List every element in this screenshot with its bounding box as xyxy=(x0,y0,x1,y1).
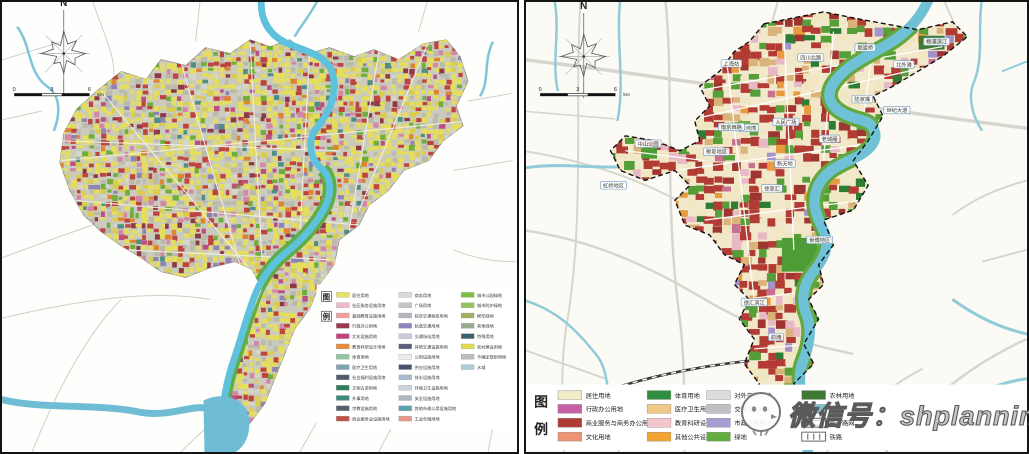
legend-label: 城市公园绿地 xyxy=(477,292,502,298)
place-label: 提篮桥 xyxy=(855,44,876,52)
scale-unit: km xyxy=(97,92,104,98)
screenshot-root: N036km图例居住用地社区服务设施用地基础教育设施用地行政办公用地文化设施用地… xyxy=(0,0,1029,454)
legend-item: 商务用地 xyxy=(399,292,431,298)
legend-swatch xyxy=(461,303,474,308)
place-label-text: 陆家嘴 xyxy=(854,95,870,103)
place-label-text: 上海站 xyxy=(724,60,741,68)
legend-swatch xyxy=(647,391,671,400)
place-label-text: 老城厢 xyxy=(822,135,838,143)
legend-swatch xyxy=(399,375,412,380)
legend-swatch xyxy=(336,396,349,401)
legend-item: 宗教设施用地 xyxy=(336,405,377,411)
legend-swatch xyxy=(707,391,731,400)
legend-label: 农村建设用地 xyxy=(477,343,502,349)
legend-label: 楔形绿地 xyxy=(477,312,494,318)
place-label: 人民广场 xyxy=(773,118,799,126)
legend-item: 其他绿地 xyxy=(461,323,493,329)
legend-item: 其他交通设施用地 xyxy=(399,343,448,349)
legend-label: 其他交通设施用地 xyxy=(415,343,448,349)
right-map-canvas: 上海站四川北路提篮桥杨浦滨江北外滩苏河湾陆家嘴世纪大道南京西路人民广场老城厢衡复… xyxy=(524,0,1029,454)
legend-label: 居住用地 xyxy=(352,292,369,298)
legend-label: 工业仓储用地 xyxy=(415,415,440,421)
legend: 图例居住用地行政办公用地商业服务与商务办公用地文化用地体育用地医疗卫生用地教育科… xyxy=(526,385,1027,450)
legend-item: 水域 xyxy=(461,364,485,370)
legend-swatch xyxy=(461,354,474,359)
legend-item: 其他市政公用设施用地 xyxy=(399,405,456,411)
legend-swatch xyxy=(336,334,349,339)
legend-item: 工业仓储用地 xyxy=(399,415,440,421)
legend-label: 文物古迹用地 xyxy=(352,385,377,391)
legend-item: 居住用地 xyxy=(336,292,368,298)
legend-swatch xyxy=(399,416,412,421)
legend-label: 社区服务设施用地 xyxy=(352,302,385,308)
legend-item: 城市公园绿地 xyxy=(461,292,502,298)
place-label: 衡复地区 xyxy=(703,148,729,156)
legend-label: 特殊用地 xyxy=(477,333,494,339)
place-label-text: 世博地区 xyxy=(809,236,830,244)
legend-title-char: 图 xyxy=(534,393,548,409)
legend-item: 楔形绿地 xyxy=(461,312,493,318)
legend-item: 交通场站用地 xyxy=(707,404,773,413)
place-label-text: 新天地 xyxy=(777,160,793,168)
place-label-text: 南京西路 xyxy=(721,123,743,131)
legend-swatch xyxy=(558,432,582,441)
legend-label: 公用设施用地 xyxy=(415,354,440,360)
place-label-text: 提篮桥 xyxy=(857,44,874,52)
legend-swatch xyxy=(399,334,412,339)
legend-item: 文物古迹用地 xyxy=(336,385,377,391)
legend-item: 体育用地 xyxy=(336,354,368,360)
legend-title-char: 图 xyxy=(323,292,330,301)
legend-item: 安全设施用地 xyxy=(399,395,440,401)
legend-swatch xyxy=(399,385,412,390)
legend-swatch xyxy=(336,375,349,380)
legend-label: 商务用地 xyxy=(415,292,432,298)
legend-swatch xyxy=(647,404,671,413)
legend-swatch xyxy=(399,292,412,297)
legend-title-char: 例 xyxy=(534,421,548,437)
north-label: N xyxy=(580,1,587,12)
legend-swatch xyxy=(399,323,412,328)
place-label-text: 杨浦滨江 xyxy=(926,38,948,46)
legend-item: 市政设施用地 xyxy=(707,418,773,427)
legend-item: 文化设施用地 xyxy=(336,333,377,339)
legend-item: 交通场站用地 xyxy=(399,333,440,339)
place-label-text: 前滩 xyxy=(771,333,782,341)
place-label: 老城厢 xyxy=(819,135,840,143)
legend-label: 不确定规划用地 xyxy=(477,354,506,360)
legend-item: 基础教育设施用地 xyxy=(336,312,385,318)
legend-item: 教育科研设计用地 xyxy=(336,343,385,349)
legend-label: 水域 xyxy=(477,364,485,370)
place-label-text: 徐家汇 xyxy=(764,184,780,192)
legend-item: 商业服务与商务办公用地 xyxy=(558,418,655,427)
legend-item: 医疗卫生用地 xyxy=(647,404,713,413)
legend-swatch xyxy=(461,292,474,297)
place-label-text: 徐汇滨江 xyxy=(744,298,766,306)
place-label: 前滩 xyxy=(768,333,783,341)
legend-label: 水域 xyxy=(830,406,842,414)
legend-swatch xyxy=(802,391,826,400)
place-label: 徐家汇 xyxy=(762,184,783,192)
place-label: 虹桥地区 xyxy=(600,181,626,189)
legend-label: 行政办公用地 xyxy=(586,406,624,414)
place-label: 世博地区 xyxy=(807,236,833,244)
legend-item: 医疗卫生用地 xyxy=(336,364,377,370)
legend-item: 外事用地 xyxy=(336,395,368,401)
legend-swatch xyxy=(336,344,349,349)
legend-label: 其他市政公用设施用地 xyxy=(415,405,457,411)
legend-swatch xyxy=(707,432,731,441)
legend-label: 广场用地 xyxy=(415,302,432,308)
place-label: 北外滩 xyxy=(894,61,915,69)
legend-item: 绿地 xyxy=(707,432,748,441)
left-map-canvas: N036km图例居住用地社区服务设施用地基础教育设施用地行政办公用地文化设施用地… xyxy=(0,0,519,454)
legend-item: 商业服务业设施用地 xyxy=(336,415,389,421)
legend-label: 排水设施用地 xyxy=(415,374,440,380)
legend-label: 市政设施用地 xyxy=(734,420,772,428)
legend-swatch xyxy=(461,344,474,349)
legend-swatch xyxy=(707,404,731,413)
legend-label: 基础教育设施用地 xyxy=(352,312,385,318)
legend-item: 铁路 xyxy=(802,432,843,441)
legend-swatch xyxy=(802,404,826,413)
legend-label: 轨道交通用地 xyxy=(415,323,440,329)
legend-swatch xyxy=(399,354,412,359)
legend-label: 交通场站用地 xyxy=(415,333,440,339)
legend-swatch xyxy=(461,313,474,318)
legend-label: 宗教设施用地 xyxy=(352,405,377,411)
place-label: 四川北路 xyxy=(798,54,824,62)
scale-tick: 3 xyxy=(50,87,53,93)
legend-label: 外事用地 xyxy=(352,395,369,401)
place-label-text: 中山公园 xyxy=(638,140,659,148)
legend-item: 水域 xyxy=(802,404,842,413)
legend-item: 农村建设用地 xyxy=(461,343,502,349)
legend-swatch xyxy=(558,391,582,400)
place-label-text: 人民广场 xyxy=(775,118,796,126)
scale-unit: km xyxy=(623,92,630,98)
legend-label: 农林用地 xyxy=(830,392,856,400)
legend-swatch xyxy=(336,406,349,411)
legend-swatch xyxy=(336,292,349,297)
legend-label: 交通场站用地 xyxy=(734,406,772,414)
legend-swatch xyxy=(461,323,474,328)
place-label: 陆家嘴 xyxy=(852,95,873,103)
legend-title-char: 例 xyxy=(323,311,330,321)
legend-label: 医疗卫生用地 xyxy=(352,364,377,370)
legend-swatch xyxy=(336,416,349,421)
legend-swatch xyxy=(558,418,582,427)
legend-label: 安全设施用地 xyxy=(415,395,440,401)
legend-label: 其他绿地 xyxy=(477,323,494,329)
legend-swatch xyxy=(399,344,412,349)
place-label-text: 北外滩 xyxy=(896,61,913,69)
place-label: 中山公园 xyxy=(635,140,661,148)
scale-tick: 6 xyxy=(614,87,617,93)
legend-swatch xyxy=(461,334,474,339)
place-label-text: 虹桥地区 xyxy=(603,181,624,189)
legend-label: 教育科研设计用地 xyxy=(352,343,385,349)
legend-swatch xyxy=(336,323,349,328)
legend-swatch xyxy=(647,432,671,441)
place-label: 新天地 xyxy=(775,160,796,168)
legend-label: 行政办公用地 xyxy=(352,323,377,329)
legend-swatch xyxy=(336,354,349,359)
legend-label: 供应设施用地 xyxy=(415,364,440,370)
legend-item: 排水设施用地 xyxy=(399,374,440,380)
legend-item: 行政办公用地 xyxy=(336,323,377,329)
legend-swatch xyxy=(399,406,412,411)
legend-swatch xyxy=(461,365,474,370)
river-widening xyxy=(203,396,249,454)
legend-swatch xyxy=(707,418,731,427)
place-label-text: 世纪大道 xyxy=(886,106,908,114)
legend-label: 铁路 xyxy=(830,433,843,441)
legend-item: 不确定规划用地 xyxy=(461,354,506,360)
legend-swatch xyxy=(399,303,412,308)
legend-swatch xyxy=(336,365,349,370)
scale-tick: 6 xyxy=(88,87,91,93)
legend-item: 综合交通枢纽用地 xyxy=(399,312,448,318)
right-map-panel: 上海站四川北路提篮桥杨浦滨江北外滩苏河湾陆家嘴世纪大道南京西路人民广场老城厢衡复… xyxy=(524,0,1029,454)
legend-label: 体育用地 xyxy=(352,354,369,360)
place-label: 徐汇滨江 xyxy=(741,298,767,306)
legend-item: 轨道交通用地 xyxy=(399,323,440,329)
legend: 图例居住用地社区服务设施用地基础教育设施用地行政办公用地文化设施用地教育科研设计… xyxy=(316,284,514,429)
legend-label: 文化设施用地 xyxy=(352,333,377,339)
legend-item: 供应设施用地 xyxy=(399,364,440,370)
legend-label: 综合交通枢纽用地 xyxy=(415,312,448,318)
left-map-panel: N036km图例居住用地社区服务设施用地基础教育设施用地行政办公用地文化设施用地… xyxy=(0,0,519,454)
legend-swatch xyxy=(647,418,671,427)
north-label: N xyxy=(60,0,67,9)
place-label: 上海站 xyxy=(721,60,742,68)
legend-swatch xyxy=(558,404,582,413)
place-label: 南京西路 xyxy=(718,123,744,131)
scale-tick: 0 xyxy=(13,87,16,93)
legend-swatch xyxy=(399,313,412,318)
legend-label: 骨干路网 xyxy=(830,420,855,428)
place-label: 杨浦滨江 xyxy=(923,38,949,46)
legend-label: 体育用地 xyxy=(675,392,701,400)
legend-label: 社会福利设施用地 xyxy=(352,374,385,380)
legend-swatch xyxy=(399,396,412,401)
legend-item: 环境卫生设施用地 xyxy=(399,385,448,391)
place-label-text: 衡复地区 xyxy=(706,148,727,156)
legend-label: 绿地 xyxy=(734,433,747,441)
place-label-text: 四川北路 xyxy=(800,54,822,62)
legend-label: 居住用地 xyxy=(586,392,612,400)
legend-swatch xyxy=(336,385,349,390)
scale-tick: 0 xyxy=(539,87,542,93)
legend-item: 社会福利设施用地 xyxy=(336,374,385,380)
legend-item: 特殊用地 xyxy=(461,333,493,339)
legend-swatch xyxy=(336,313,349,318)
legend-label: 文化用地 xyxy=(586,433,612,441)
legend-item: 公用设施用地 xyxy=(399,354,440,360)
legend-item: 行政办公用地 xyxy=(558,404,624,413)
legend-swatch xyxy=(399,365,412,370)
legend-label: 城市防护绿地 xyxy=(477,302,502,308)
place-label: 世纪大道 xyxy=(884,106,910,114)
legend-item: 城市防护绿地 xyxy=(461,302,502,308)
scale-tick: 3 xyxy=(576,87,579,93)
legend-item: 对外交通用地 xyxy=(707,391,773,400)
legend-label: 对外交通用地 xyxy=(734,392,772,400)
legend-swatch xyxy=(336,303,349,308)
legend-label: 商业服务与商务办公用地 xyxy=(586,420,655,428)
legend-label: 商业服务业设施用地 xyxy=(352,415,389,421)
legend-item: 社区服务设施用地 xyxy=(336,302,385,308)
legend-item: 广场用地 xyxy=(399,302,431,308)
legend-label: 环境卫生设施用地 xyxy=(415,385,448,391)
